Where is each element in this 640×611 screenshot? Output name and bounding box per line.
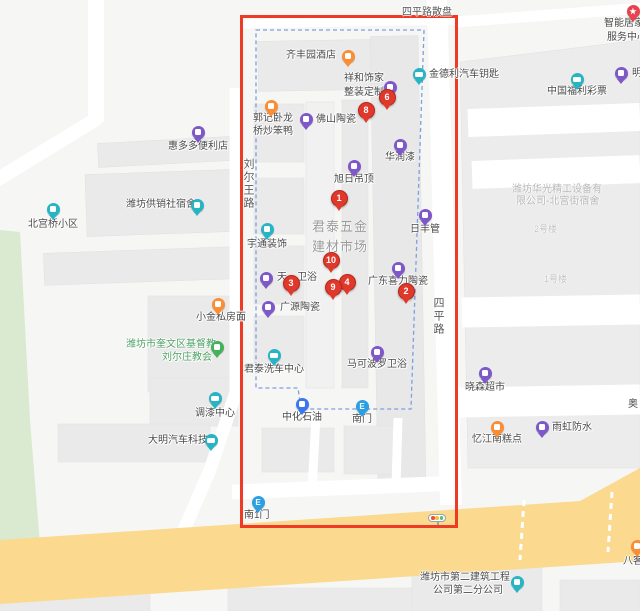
poi-dierjianzhu-company-icon[interactable] — [511, 576, 524, 589]
marker-2[interactable]: 2 — [398, 283, 415, 300]
marker-9[interactable]: 9 — [325, 279, 342, 296]
poi-xianghe-shijia-label: 祥和饰家 — [344, 73, 384, 85]
poi-juntai-xiche-label: 君泰洗车中心 — [244, 364, 304, 376]
bag-icon — [514, 579, 520, 585]
road-label-siping-road: 四平路 — [430, 297, 446, 336]
poi-daming-qiche-label: 大明汽车科技 — [148, 435, 208, 447]
bag-icon — [214, 344, 220, 350]
bag-icon — [374, 349, 380, 355]
poi-huiduoduo-store-label: 惠多多便利店 — [168, 141, 228, 153]
map-canvas[interactable]: 四平路散盘刘尔王路四平路君泰五金建材市场潍坊华光精工设备有限公司-北宫街宿舍2号… — [0, 0, 640, 611]
bag-icon — [195, 129, 201, 135]
bag-icon — [303, 116, 309, 122]
poi-liuerzhuang-church-label: 潍坊市奎文区基督教 — [126, 339, 216, 351]
marker-3[interactable]: 3 — [283, 275, 300, 292]
poi-xuri-diaoding-icon[interactable] — [348, 160, 361, 173]
road-label-liuerwang-road: 刘尔王路 — [240, 158, 256, 210]
poi-dierjianzhu-company-label: 潍坊市第二建筑工程 — [420, 572, 510, 584]
poi-gongxiaoshe-sushe-icon[interactable] — [191, 199, 204, 212]
poi-nan1men-entrance-icon[interactable]: E — [252, 496, 265, 509]
poi-qifengyuan-hotel-icon[interactable] — [342, 50, 355, 63]
poi-huiduoduo-store-icon[interactable] — [192, 126, 205, 139]
bag-icon — [299, 401, 305, 407]
car-icon — [207, 438, 215, 443]
poi-guoji-wolong-duck-label: 桥炒笨鸭 — [253, 126, 293, 138]
poi-rifeng-guan-icon[interactable] — [419, 209, 432, 222]
poi-bake-partial-icon[interactable] — [631, 540, 640, 553]
poi-yuhong-fangshui-label: 雨虹防水 — [552, 422, 592, 434]
car-icon — [270, 353, 278, 358]
poi-beigongqiao-xiaoqu-icon[interactable] — [47, 203, 60, 216]
marker-8[interactable]: 8 — [358, 102, 375, 119]
bag-icon — [422, 212, 428, 218]
entrance-icon: E — [356, 400, 369, 413]
bag-icon — [482, 370, 488, 376]
poi-yutong-zhuangshi-label: 宇通装饰 — [247, 239, 287, 251]
car-icon — [573, 77, 581, 82]
poi-tiaoqi-center-icon[interactable] — [209, 392, 222, 405]
traffic-light-icon — [428, 514, 446, 522]
poi-jindeli-car-key-icon[interactable] — [413, 68, 426, 81]
poi-china-welfare-lottery-icon[interactable] — [571, 73, 584, 86]
poi-foshan-taoci-icon[interactable] — [300, 113, 313, 126]
bag-icon — [268, 103, 274, 109]
marker-1[interactable]: 1 — [331, 190, 348, 207]
poi-liuerzhuang-church-icon[interactable] — [211, 341, 224, 354]
area-label-huaguang-line2: 限公司-北宫街宿舍 — [516, 192, 599, 207]
poi-zhineng-jujia-label: 服务中心 — [607, 32, 640, 44]
poi-gongxiaoshe-sushe-label: 潍坊供销社宿舍 — [126, 199, 196, 211]
marker-10[interactable]: 10 — [323, 252, 340, 269]
bag-icon — [50, 206, 56, 212]
bag-icon — [345, 53, 351, 59]
poi-juntai-xiche-icon[interactable] — [268, 349, 281, 362]
poi-daming-qiche-icon[interactable] — [205, 434, 218, 447]
road-label-siping-road-sanpan: 四平路散盘 — [402, 3, 452, 18]
poi-yuhong-fangshui-icon[interactable] — [536, 421, 549, 434]
bag-icon — [264, 226, 270, 232]
bag-icon — [263, 275, 269, 281]
poi-beigongqiao-xiaoqu-label: 北宫桥小区 — [28, 219, 78, 231]
poi-xiaosen-chaoshi-icon[interactable] — [479, 367, 492, 380]
poi-rifeng-guan-label: 日丰管 — [410, 224, 440, 236]
entrance-icon: E — [252, 496, 265, 509]
bag-icon — [494, 424, 500, 430]
bag-icon — [395, 265, 401, 271]
poi-guoji-wolong-duck-icon[interactable] — [265, 100, 278, 113]
poi-zhonghua-shiyou-icon[interactable] — [296, 398, 309, 411]
poi-xiaojin-sifangmian-icon[interactable] — [212, 298, 225, 311]
bag-icon — [194, 202, 200, 208]
poi-liuerzhuang-church-label: 刘尔庄教会 — [162, 352, 212, 364]
car-icon — [211, 396, 219, 401]
bag-icon — [539, 424, 545, 430]
bag-icon — [397, 142, 403, 148]
poi-dierjianzhu-company-label: 公司第二分公司 — [433, 585, 503, 597]
poi-nanmen-entrance-icon[interactable]: E — [356, 400, 369, 413]
area-label-building-no1: 1号楼 — [544, 272, 567, 285]
car-icon — [415, 72, 423, 77]
bag-icon — [265, 304, 271, 310]
poi-ming-partial-label: 明 — [632, 68, 640, 80]
area-label-juntai-market-line2: 建材市场 — [312, 236, 368, 255]
poi-ao-partial-label: 奥 — [628, 399, 638, 411]
poi-xiaosen-chaoshi-label: 晓森超市 — [465, 382, 505, 394]
poi-tian-weiyu-icon[interactable] — [260, 272, 273, 285]
area-label-building-no2: 2号楼 — [534, 222, 557, 235]
poi-guangyuan-taoci-icon[interactable] — [262, 301, 275, 314]
bag-icon — [634, 543, 640, 549]
star-icon: ★ — [627, 5, 640, 18]
poi-zhineng-jujia-icon[interactable]: ★ — [627, 5, 640, 18]
bag-icon — [351, 163, 357, 169]
poi-yutong-zhuangshi-icon[interactable] — [261, 223, 274, 236]
bag-icon — [618, 70, 624, 76]
map-base-layer — [0, 0, 640, 611]
poi-jindeli-car-key-label: 金德利汽车钥匙 — [429, 69, 499, 81]
poi-makeboluo-weiyu-icon[interactable] — [371, 346, 384, 359]
poi-guangdong-xili-taoci-icon[interactable] — [392, 262, 405, 275]
poi-tiaoqi-center-label: 调漆中心 — [195, 408, 235, 420]
poi-ming-partial-icon[interactable] — [615, 67, 628, 80]
poi-tian-weiyu-label: 卫浴 — [297, 272, 317, 284]
poi-bake-partial-label: 八客 — [623, 556, 640, 568]
poi-qifengyuan-hotel-label: 齐丰园酒店 — [286, 50, 336, 62]
area-label-juntai-market-line1: 君泰五金 — [312, 216, 368, 235]
poi-foshan-taoci-label: 佛山陶瓷 — [316, 114, 356, 126]
poi-guangyuan-taoci-label: 广源陶瓷 — [280, 302, 320, 314]
poi-yijiangnan-gaodian-icon[interactable] — [491, 421, 504, 434]
poi-huarun-paint-icon[interactable] — [394, 139, 407, 152]
bag-icon — [215, 301, 221, 307]
marker-6[interactable]: 6 — [379, 89, 396, 106]
